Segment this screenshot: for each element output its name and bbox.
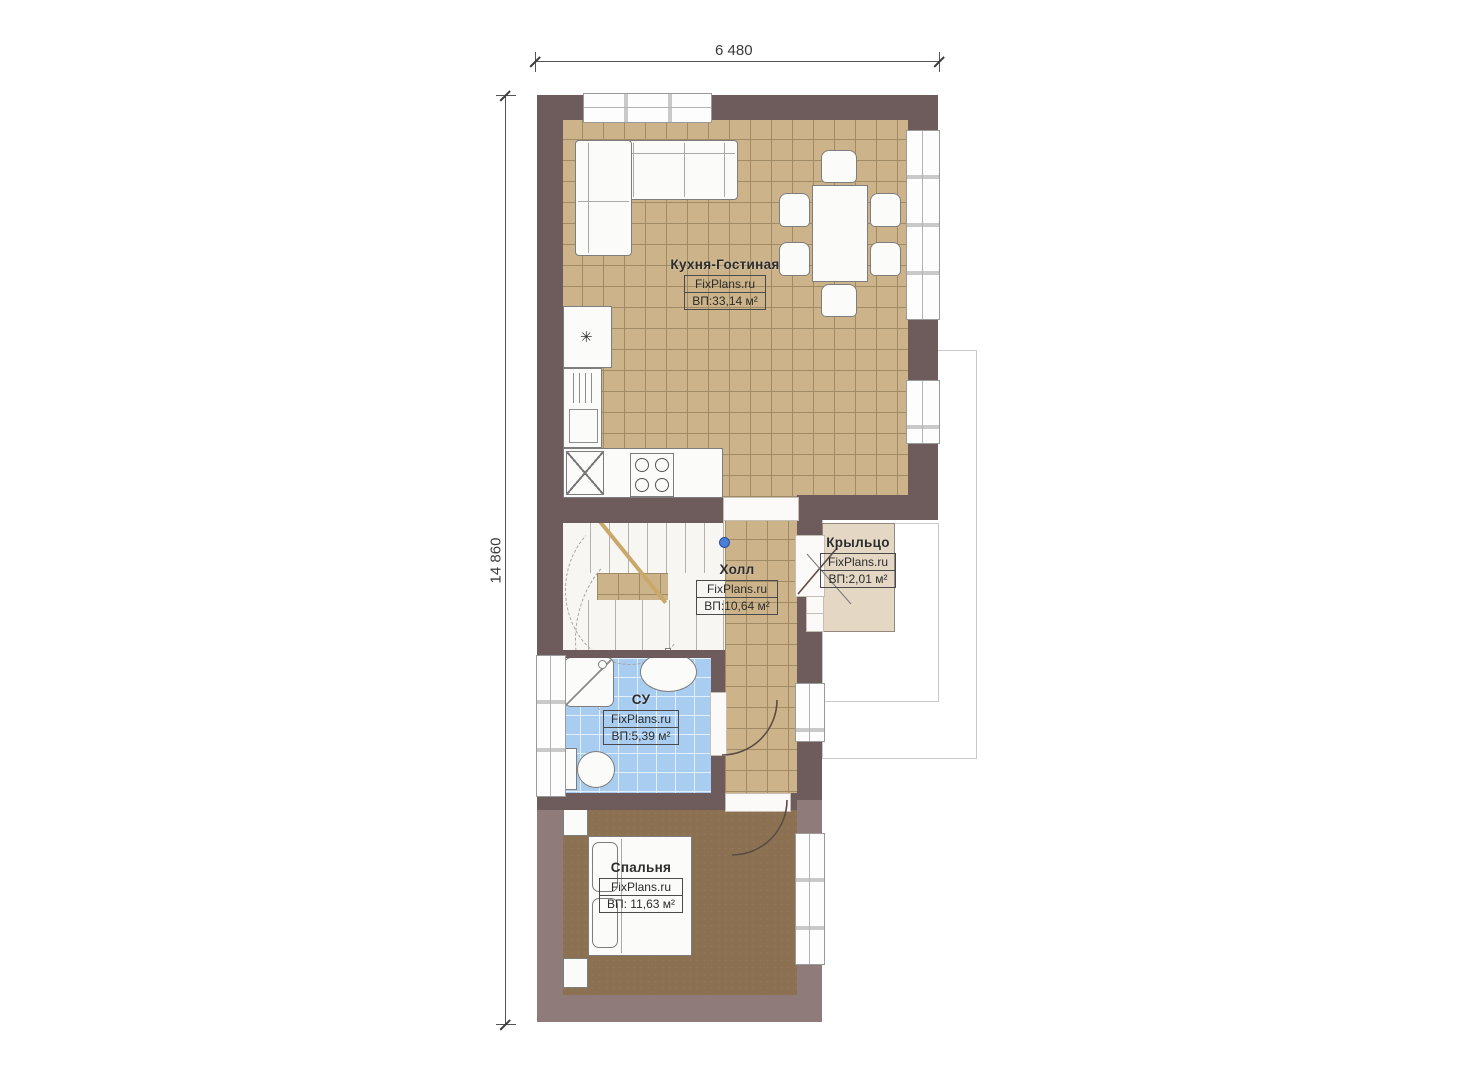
sofa-cushion-divider: [633, 143, 634, 197]
freezer-icon: ✳: [580, 328, 593, 346]
dining-chair: [870, 193, 901, 227]
dining-chair: [779, 193, 810, 227]
wall-left-lower: [537, 810, 563, 1022]
wall-left-upper: [537, 95, 563, 658]
room-label-kitchen: Кухня-Гостиная FixPlans.ru ВП:33,14 м²: [645, 257, 805, 310]
kitchen-sink: [566, 451, 604, 495]
floor-plan: ✳: [0, 0, 1474, 1080]
toilet-bowl: [577, 751, 615, 788]
wall-kitchen-hall-right: [797, 495, 938, 520]
burner-icon: [635, 478, 649, 492]
dimension-line-left: [505, 95, 506, 1025]
dining-table: [812, 185, 868, 282]
window-kitchen-top: [583, 93, 712, 123]
room-label-porch: Крыльцо FixPlans.ru ВП:2,01 м²: [778, 535, 938, 588]
room-name: Спальня: [561, 860, 721, 875]
washbasin: [640, 652, 697, 692]
room-label-bedroom: Спальня FixPlans.ru ВП: 11,63 м²: [561, 860, 721, 913]
room-name: Кухня-Гостиная: [645, 257, 805, 272]
dimension-width-label: 6 480: [715, 42, 753, 59]
room-info-box: FixPlans.ru ВП:10,64 м²: [696, 580, 778, 615]
room-label-bathroom: СУ FixPlans.ru ВП:5,39 м²: [561, 692, 721, 745]
sofa-cushion-divider: [684, 143, 685, 197]
sofa-back-line: [588, 143, 589, 253]
dining-chair: [821, 150, 857, 183]
burner-icon: [655, 458, 669, 472]
watermark: FixPlans.ru: [600, 879, 682, 895]
room-name: Крыльцо: [778, 535, 938, 550]
nightstand: [563, 958, 588, 988]
bedroom-door-swing: [732, 800, 790, 858]
dining-chair: [821, 284, 857, 317]
wall-bottom: [537, 995, 822, 1022]
room-info-box: FixPlans.ru ВП:33,14 м²: [684, 275, 766, 310]
window-kitchen-right-large: [906, 130, 940, 320]
room-area: ВП: 11,63 м²: [600, 895, 682, 912]
window-hall-right: [795, 683, 825, 742]
kitchen-tall-unit: [563, 368, 602, 448]
window-bedroom-right: [795, 833, 825, 965]
burner-icon: [655, 478, 669, 492]
bathroom-door-swing: [722, 700, 780, 758]
watermark: FixPlans.ru: [604, 711, 678, 727]
wall-bathroom-top: [561, 650, 711, 658]
room-area: ВП:10,64 м²: [697, 597, 777, 614]
burner-icon: [635, 458, 649, 472]
sofa-cushion-divider: [578, 201, 629, 202]
dimension-line-top: [535, 61, 940, 62]
dining-chair: [870, 242, 901, 276]
room-info-box: FixPlans.ru ВП:2,01 м²: [820, 553, 896, 588]
watermark: FixPlans.ru: [685, 276, 765, 292]
room-name: СУ: [561, 692, 721, 707]
window-kitchen-right-small: [906, 380, 940, 444]
reference-point: [719, 537, 730, 548]
vent-grill-icon: [568, 373, 597, 403]
porch-step: [806, 613, 824, 632]
shower-head-icon: [598, 660, 607, 669]
dimension-height-label: 14 860: [487, 538, 504, 584]
room-area: ВП:33,14 м²: [685, 292, 765, 309]
room-info-box: FixPlans.ru ВП:5,39 м²: [603, 710, 679, 745]
kitchen-hall-opening: [723, 497, 799, 521]
stove: [630, 453, 674, 497]
wall-kitchen-hall-left: [537, 498, 723, 523]
room-area: ВП:5,39 м²: [604, 727, 678, 744]
oven-door: [569, 409, 598, 443]
room-area: ВП:2,01 м²: [821, 570, 895, 587]
room-info-box: FixPlans.ru ВП: 11,63 м²: [599, 878, 683, 913]
watermark: FixPlans.ru: [697, 581, 777, 597]
nightstand: [563, 806, 588, 836]
watermark: FixPlans.ru: [821, 554, 895, 570]
sofa-section-vertical: [575, 140, 632, 256]
sofa-armrest-line: [724, 143, 725, 197]
